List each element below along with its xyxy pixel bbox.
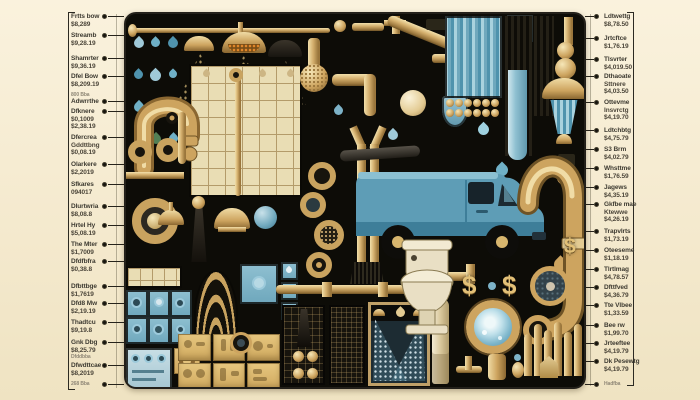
- callout-dot: [594, 147, 599, 152]
- callout-price: $1,99.70: [604, 330, 644, 338]
- water-sphere: [254, 206, 277, 229]
- pipe-flange: [308, 162, 336, 190]
- callout-price: $1,18.19: [604, 255, 644, 263]
- strainer-ring: [314, 220, 344, 250]
- callout-leader-line: [108, 303, 124, 304]
- callout-right: Jrtcftce$1,76.19: [604, 35, 644, 50]
- dollar-sign: $: [502, 272, 516, 298]
- callout-price: $8,289: [71, 21, 111, 29]
- callout-right: Jrteeftee$4,19.79: [604, 340, 644, 355]
- callout-leader-line: [585, 325, 594, 326]
- callout-price: $0,38.8: [71, 266, 111, 274]
- camera-knob: [230, 332, 252, 354]
- water-drop-icon: [150, 36, 163, 49]
- ceramic-ball: [400, 90, 426, 116]
- callout-label: Whsttme: [604, 165, 644, 173]
- callout-price: $2,38.19: [71, 123, 111, 131]
- callout-dot: [102, 301, 107, 306]
- callout-leader-line: [108, 58, 124, 59]
- water-drop-icon: [386, 128, 400, 142]
- flange-bolt: [316, 262, 322, 268]
- callout-right: Oteeseme$1,18.19: [604, 247, 644, 262]
- callout-label: Ldtchbtg: [604, 127, 644, 135]
- callout-leader-line: [585, 38, 594, 39]
- shower-head-icon: [184, 36, 214, 51]
- callout-dot: [102, 382, 107, 387]
- callout-price: $4,75.79: [604, 135, 644, 143]
- pipe-end-cap: [128, 24, 137, 37]
- callout-label: Hadfba: [604, 381, 644, 387]
- callout-price: Insvrctg: [604, 107, 644, 115]
- callout-price: $4,02.79: [604, 154, 644, 162]
- callout-price: $8,209.19: [71, 81, 111, 89]
- pipe-coupling: [378, 282, 388, 297]
- callout-price: Ktewwe: [604, 209, 644, 217]
- callout-dot: [102, 259, 107, 264]
- hanging-droplet: [202, 69, 212, 79]
- shower-face: [228, 44, 260, 52]
- callout-label: Tlrtlmag: [604, 266, 644, 274]
- drain-ring: [300, 192, 326, 218]
- spray-cone: [548, 100, 580, 134]
- callout-right: OttevmeInsvrctg$4,19.70: [604, 99, 644, 122]
- callout-leader-line: [108, 261, 124, 262]
- callout-right: Dfttfved$4,36.79: [604, 284, 644, 299]
- callout-label: Dthaoate: [604, 73, 644, 81]
- callout-price: $4,35.19: [604, 192, 644, 200]
- callout-dot: [102, 33, 107, 38]
- callout-price: $9,36.19: [71, 63, 111, 71]
- tile-strip: [126, 266, 182, 288]
- callout-leader-line: [108, 365, 124, 366]
- pipe-icon: [352, 23, 384, 31]
- callout-leader-line: [108, 111, 124, 112]
- callout-price: $0,08.19: [71, 149, 111, 157]
- callout-price: $4,26.19: [604, 216, 644, 224]
- callout-leader-line: [585, 384, 594, 385]
- callout-label: Bee rw: [604, 322, 644, 330]
- bell-valve: [214, 208, 250, 229]
- callout-dot: [102, 182, 107, 187]
- callout-price: 094017: [71, 189, 111, 197]
- callout-right: Jagews$4,35.19: [604, 184, 644, 199]
- blue-tile: [240, 264, 278, 304]
- callout-dot: [594, 185, 599, 190]
- pipe-flange: [128, 140, 152, 164]
- callout-leader-line: [585, 343, 594, 344]
- callout-dot: [102, 204, 107, 209]
- callout-leader-line: [108, 206, 124, 207]
- bead-fringe: [445, 98, 502, 118]
- toilet-icon: [394, 238, 462, 338]
- callout-leader-line: [585, 16, 594, 17]
- callout-right: Bee rw$1,99.70: [604, 322, 644, 337]
- water-drop-icon: [132, 68, 145, 81]
- callout-label: S3 Brm: [604, 146, 644, 154]
- callout-right: Whsttme$1,76.59: [604, 165, 644, 180]
- pipe-icon: [178, 112, 186, 164]
- callout-price: $4,19.79: [604, 366, 644, 374]
- callout-price: $4,19.70: [604, 114, 644, 122]
- callout-price: $2,19.19: [71, 308, 111, 316]
- callout-leader-line: [585, 231, 594, 232]
- rail-hook: [229, 68, 243, 82]
- callout-leader-line: [108, 137, 124, 138]
- callout-price: $4,19.79: [604, 348, 644, 356]
- callout-leader-line: [108, 101, 124, 102]
- dollar-sign: $: [564, 234, 576, 260]
- pipe-icon: [126, 172, 184, 179]
- callout-dot: [102, 340, 107, 345]
- callout-right: Tlsvrter$4,019.50: [604, 56, 644, 71]
- callout-leader-line: [585, 187, 594, 188]
- callout-price: $1,76.19: [604, 43, 644, 51]
- callout-price: $0,1009: [71, 116, 111, 124]
- callout-dot: [594, 14, 599, 19]
- callout-leader-line: [585, 149, 594, 150]
- callout-leader-line: [108, 286, 124, 287]
- shower-arm: [564, 17, 573, 45]
- callout-price: $5,08.19: [71, 230, 111, 238]
- drain-cover: [530, 266, 570, 306]
- pipe-flange: [306, 252, 332, 278]
- callout-dot: [102, 74, 107, 79]
- callout-label: Dfttfved: [604, 284, 644, 292]
- pipe-coupling: [322, 282, 332, 297]
- callout-label: Jrtcftce: [604, 35, 644, 43]
- callout-dot: [594, 57, 599, 62]
- callout-dot: [102, 109, 107, 114]
- callout-label: Trapvlrts: [604, 228, 644, 236]
- callout-dot: [594, 359, 599, 364]
- callout-right: Gkfbe maeKtewwe$4,26.19: [604, 201, 644, 224]
- callout-price: $1,76.59: [604, 173, 644, 181]
- nozzle: [373, 309, 385, 316]
- mesh-panel: [329, 305, 365, 385]
- bell-valve: [158, 210, 184, 225]
- callout-label: Oteeseme: [604, 247, 644, 255]
- callout-right: Trapvlrts$1,73.19: [604, 228, 644, 243]
- callout-dot: [594, 128, 599, 133]
- callout-right: Hadfba: [604, 381, 644, 387]
- water-dot: [488, 282, 496, 290]
- callout-dot: [594, 382, 599, 387]
- shower-rail: [235, 74, 241, 196]
- callout-dot: [594, 341, 599, 346]
- callout-leader-line: [108, 16, 124, 17]
- callout-price: $1,33.59: [604, 310, 644, 318]
- coiled-pipe-arch: [194, 270, 238, 344]
- callout-price: $8,25.79: [71, 347, 111, 355]
- callout-left: Dfddbba: [71, 354, 111, 360]
- callout-leader-line: [108, 384, 124, 385]
- canister: [488, 354, 506, 380]
- callout-dot: [594, 285, 599, 290]
- callout-right: Ldtwettg$8,78.50: [604, 13, 644, 28]
- stamped-tile-grid: [178, 334, 280, 389]
- spigot-stem: [465, 356, 472, 370]
- control-panel: [126, 348, 172, 389]
- left-edge-rule: [116, 14, 117, 388]
- callout-leader-line: [108, 164, 124, 165]
- callout-dot: [102, 99, 107, 104]
- callout-dot: [102, 135, 107, 140]
- drain-porthole: [466, 300, 520, 354]
- callout-price: $4,78.57: [604, 274, 644, 282]
- shower-ball-head: [300, 64, 328, 92]
- water-drop-icon: [168, 68, 179, 79]
- water-drop-icon: [166, 36, 180, 50]
- callout-right: DthaoateSttnere$4,03.50: [604, 73, 644, 96]
- callout-label: Jrteeftee: [604, 340, 644, 348]
- callout-leader-line: [585, 76, 594, 77]
- callout-dot: [594, 36, 599, 41]
- callout-label: Gkfbe mae: [604, 201, 644, 209]
- right-edge-rule: [590, 14, 591, 386]
- plunger-knob: [192, 196, 205, 209]
- callout-dot: [102, 14, 107, 19]
- callout-leader-line: [585, 204, 594, 205]
- callout-label: Tlsvrter: [604, 56, 644, 64]
- callout-price: $4,36.79: [604, 292, 644, 300]
- callout-dot: [102, 363, 107, 368]
- illustration-panel: $ $ $: [124, 12, 586, 389]
- callout-dot: [594, 166, 599, 171]
- callout-label: Dfddbba: [71, 354, 111, 360]
- callout-price: Sttnere: [604, 81, 644, 89]
- callout-dot: [594, 100, 599, 105]
- dollar-sign: $: [462, 272, 476, 298]
- callout-dot: [594, 267, 599, 272]
- callout-right: Ldtchbtg$4,75.79: [604, 127, 644, 142]
- callout-price: $8,78.50: [604, 21, 644, 29]
- callout-right: Dk Pesewtg$4,19.79: [604, 358, 644, 373]
- callout-dot: [594, 229, 599, 234]
- callout-right: Tte Vlbee$1,33.59: [604, 302, 644, 317]
- plunger-handle: [190, 204, 208, 262]
- left-bracket-tick-bottom: [68, 389, 75, 390]
- callout-dot: [102, 162, 107, 167]
- water-column: [445, 16, 502, 98]
- callout-leader-line: [585, 305, 594, 306]
- callout-label: Tte Vlbee: [604, 302, 644, 310]
- callout-dot: [594, 248, 599, 253]
- callout-leader-line: [585, 250, 594, 251]
- callout-price: $1,7009: [71, 249, 111, 257]
- callout-leader-line: [108, 184, 124, 185]
- ball-grid: [292, 351, 318, 383]
- callout-leader-line: [585, 361, 594, 362]
- callout-price: $8,08.8: [71, 211, 111, 219]
- callout-leader-line: [108, 244, 124, 245]
- callout-label: Jagews: [604, 184, 644, 192]
- callout-dot: [102, 223, 107, 228]
- callout-leader-line: [585, 168, 594, 169]
- callout-dot: [594, 74, 599, 79]
- valve-stem: [169, 202, 173, 211]
- callout-price: $1,73.19: [604, 236, 644, 244]
- cone: [296, 309, 312, 347]
- pipe-flange: [156, 138, 180, 162]
- hanging-droplet: [286, 69, 296, 79]
- water-drop-icon: [476, 122, 492, 138]
- pipe-icon: [134, 28, 330, 33]
- callout-price: $1,7619: [71, 291, 111, 299]
- callout-price: $4,019.50: [604, 64, 644, 72]
- callout-price: $9,28.19: [71, 40, 111, 48]
- callout-leader-line: [108, 342, 124, 343]
- pipe-joint: [555, 58, 576, 79]
- callout-leader-line: [108, 76, 124, 77]
- callout-price: $8,2019: [71, 370, 111, 378]
- water-drop-icon: [148, 67, 164, 83]
- callout-price: $9,19.8: [71, 327, 111, 335]
- hanging-droplet: [258, 69, 268, 79]
- callout-dot: [594, 202, 599, 207]
- callout-leader-line: [585, 130, 594, 131]
- bottle: [512, 362, 524, 378]
- pipe-icon: [364, 74, 376, 116]
- callout-leader-line: [108, 225, 124, 226]
- left-bracket-line: [68, 12, 69, 390]
- callout-leader-line: [585, 269, 594, 270]
- callout-price: $2,2019: [71, 169, 111, 177]
- water-drop-icon: [332, 104, 345, 117]
- callout-leader-line: [585, 59, 594, 60]
- callout-dot: [594, 303, 599, 308]
- mesh-panel: [282, 305, 325, 385]
- water-dot: [514, 354, 521, 361]
- callout-price: Gddttbng: [71, 142, 111, 150]
- callout-dot: [102, 242, 107, 247]
- callout-right: S3 Brm$4,02.79: [604, 146, 644, 161]
- callout-dot: [102, 320, 107, 325]
- callout-label: Ottevme: [604, 99, 644, 107]
- callout-leader-line: [585, 102, 594, 103]
- water-drop-icon: [132, 36, 146, 50]
- callout-leader-line: [108, 322, 124, 323]
- shower-head-icon: [268, 40, 302, 57]
- callout-leader-line: [585, 287, 594, 288]
- callout-right: Tlrtlmag$4,78.57: [604, 266, 644, 281]
- pipe-joint: [557, 42, 574, 59]
- bell-rim: [218, 227, 246, 232]
- callout-dot: [102, 284, 107, 289]
- callout-label: Ldtwettg: [604, 13, 644, 21]
- callout-price: $4,03.50: [604, 88, 644, 96]
- valve-knob: [334, 20, 346, 32]
- callout-dot: [594, 323, 599, 328]
- callout-dot: [102, 56, 107, 61]
- callout-label: Dk Pesewtg: [604, 358, 644, 366]
- callout-leader-line: [108, 35, 124, 36]
